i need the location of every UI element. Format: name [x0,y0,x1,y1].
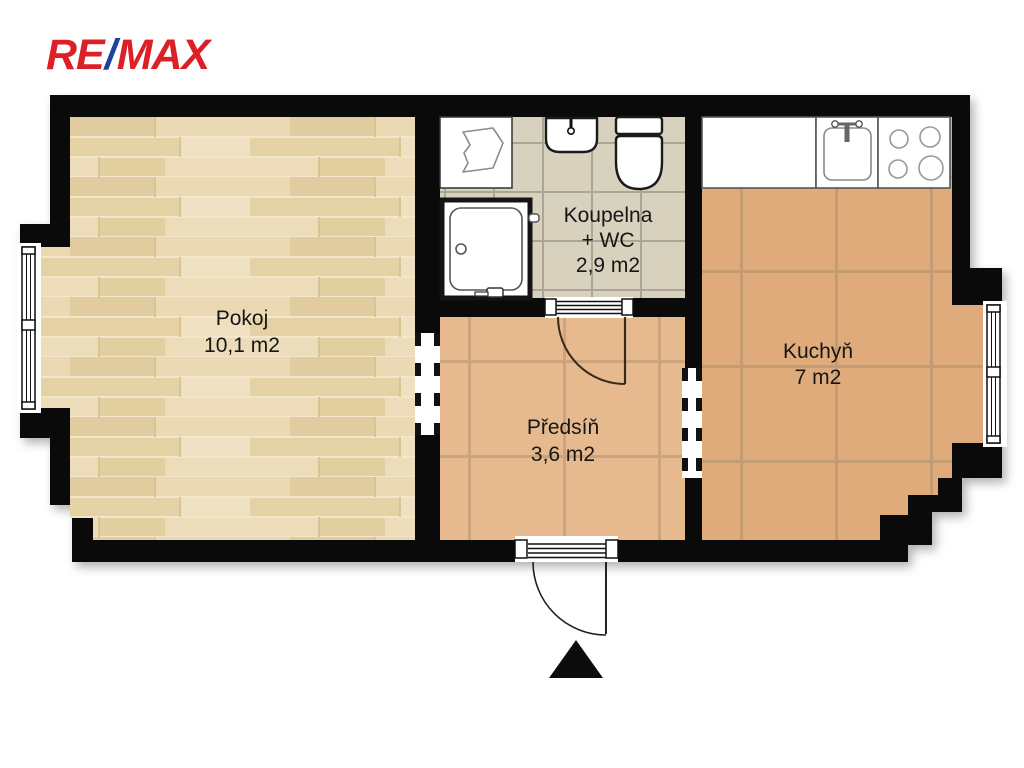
kuchyn-label: Kuchyň [783,340,853,363]
koupelna-label: Koupelna [564,204,653,227]
floor-plan-svg: Pokoj 10,1 m2 Koupelna + WC 2,9 m2 Předs… [0,0,1024,768]
predsin-area: 3,6 m2 [531,443,595,466]
bathroom-sink [546,118,597,152]
koupelna-sub: + WC [581,229,634,252]
opening-predsin-kuchyn [682,368,702,478]
shower-handle [529,214,539,222]
entrance-door [515,536,618,635]
left-window [17,243,41,413]
shower-drain [456,244,466,254]
opening-pokoj-predsin [415,333,440,435]
floor-plan: Pokoj 10,1 m2 Koupelna + WC 2,9 m2 Předs… [0,0,1024,768]
kuchyn-area: 7 m2 [795,366,842,389]
pokoj-area: 10,1 m2 [204,334,280,357]
washing-machine [440,117,512,188]
predsin-label: Předsíň [527,416,599,439]
right-window [983,301,1007,447]
pokoj-label: Pokoj [216,307,269,330]
shower-faucet [487,288,503,297]
shower [442,200,539,298]
floorplan-page: RE/MAX [0,0,1024,768]
entrance-door-swing [533,562,606,635]
koupelna-area: 2,9 m2 [576,254,640,277]
toilet [616,117,662,189]
entrance-arrow-icon [549,640,603,678]
